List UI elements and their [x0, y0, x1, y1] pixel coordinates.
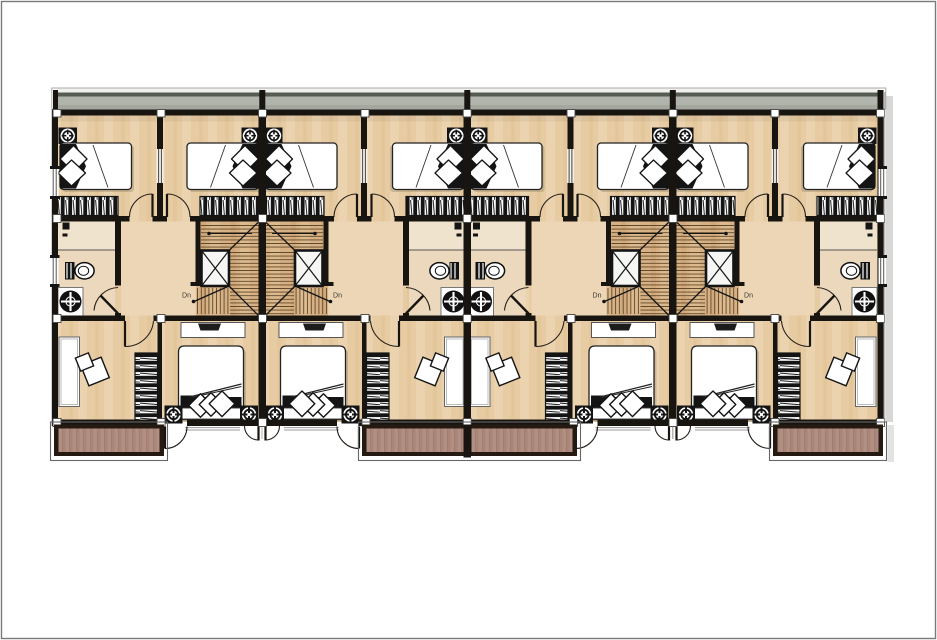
- svg-text:Dn: Dn: [182, 293, 191, 300]
- svg-text:Dn: Dn: [744, 293, 753, 300]
- svg-text:Dn: Dn: [593, 293, 602, 300]
- svg-text:Dn: Dn: [333, 293, 342, 300]
